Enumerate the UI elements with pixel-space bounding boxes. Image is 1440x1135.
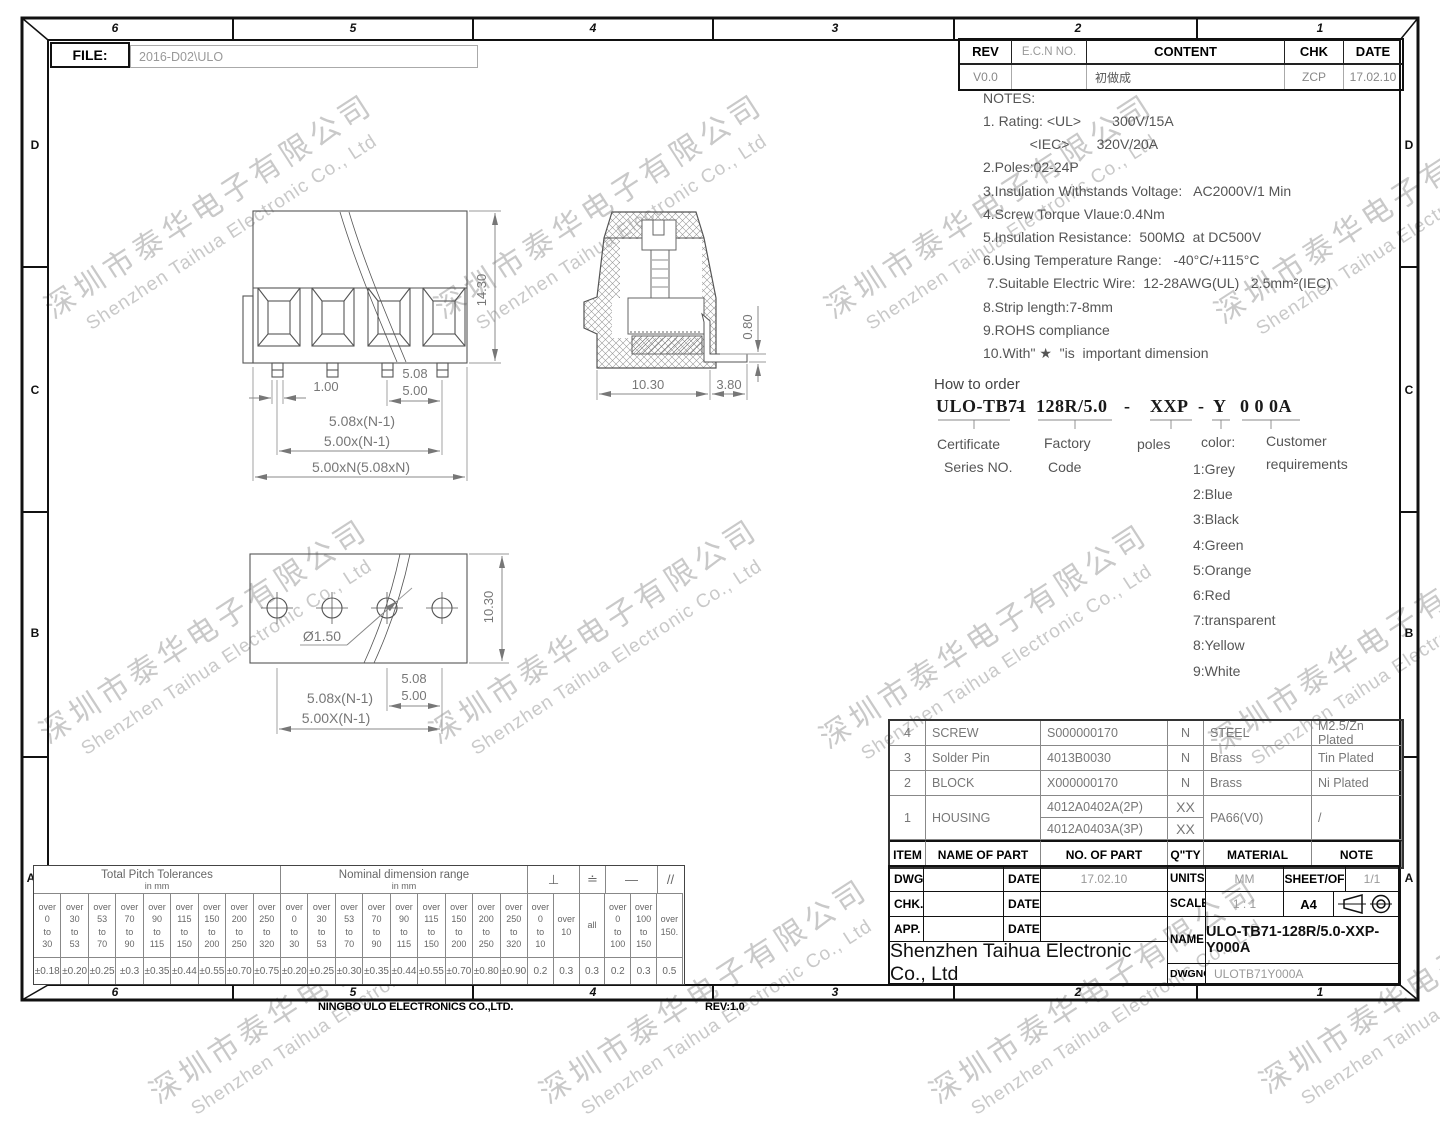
part-name: HOUSING xyxy=(926,796,1041,840)
range-cell: over150. xyxy=(657,894,683,958)
zone-bottom-5: 5 xyxy=(343,985,363,999)
range-cell: over53to70 xyxy=(336,894,363,958)
tolerance-value: ±0.55 xyxy=(199,958,226,984)
tolerance-value: ±0.20 xyxy=(61,958,88,984)
nominal-title-text: Nominal dimension range xyxy=(339,869,469,881)
zone-right-d: D xyxy=(1402,138,1416,152)
footer-rev: REV:1.0 xyxy=(705,1001,745,1013)
range-cell: over150to200 xyxy=(199,894,226,958)
app-label: APP. xyxy=(890,917,924,942)
file-label: FILE: xyxy=(50,42,130,68)
zone-top-5: 5 xyxy=(343,21,363,35)
note-line: 4.Screw Torque Vlaue:0.4Nm xyxy=(983,203,1331,226)
order-label-poles: poles xyxy=(1137,436,1170,452)
tolerance-value: ±0.70 xyxy=(446,958,473,984)
tolerance-value: ±0.30 xyxy=(336,958,363,984)
projection-symbol xyxy=(1334,892,1398,917)
color-option: 4:Green xyxy=(1193,533,1276,558)
note-line: <IEC> 320V/20A xyxy=(983,133,1331,156)
note-line: 7.Suitable Electric Wire: 12-28AWG(UL) 2… xyxy=(983,272,1331,295)
tolerance-value: ±0.75 xyxy=(254,958,281,984)
chk-date-value xyxy=(1041,892,1168,917)
tolerance-value: ±0.35 xyxy=(363,958,390,984)
units-value: MM xyxy=(1206,867,1284,892)
third-angle-projection-icon xyxy=(1338,893,1394,915)
content-header: CONTENT xyxy=(1087,40,1285,65)
dwgno-label: DWGNO. xyxy=(1168,964,1206,983)
pitch-range-headers: over0to30over30to53over53to70over70to90o… xyxy=(34,894,281,958)
part-item: 4 xyxy=(890,721,926,746)
order-label-factory: Factory xyxy=(1044,435,1091,451)
geo-range-headers: over0to10over10allover0to100over100to150… xyxy=(528,894,683,958)
note-line: 5.Insulation Resistance: 500MΩ at DC500V xyxy=(983,226,1331,249)
part-no: X000000170 xyxy=(1041,771,1168,796)
tolerance-value: 0.2 xyxy=(528,958,554,984)
note-line: 10.With" ★ "is important dimension xyxy=(983,342,1331,365)
parts-header-no: NO. OF PART xyxy=(1041,840,1168,867)
note-line: 9.ROHS compliance xyxy=(983,319,1331,342)
part-qty: XX xyxy=(1168,796,1204,818)
zone-left-c: C xyxy=(28,383,42,397)
nominal-range-title: Nominal dimension range in mm xyxy=(281,866,528,894)
zone-right-c: C xyxy=(1402,383,1416,397)
units-label: UNITS xyxy=(1168,867,1206,892)
color-options-list: 1:Grey2:Blue3:Black4:Green5:Orange6:Red7… xyxy=(1193,457,1276,684)
zone-left-d: D xyxy=(28,138,42,152)
tolerance-value: ±0.18 xyxy=(34,958,61,984)
name-label: NAME xyxy=(1168,917,1206,964)
order-label-series: Series NO. xyxy=(944,459,1012,475)
part-name: BLOCK xyxy=(926,771,1041,796)
parts-header-qty: Q"TY xyxy=(1168,840,1204,867)
notes-block: NOTES: 1. Rating: <UL> 300V/15A <IEC> 32… xyxy=(983,90,1331,365)
part-note: Ni Plated xyxy=(1312,771,1402,796)
range-cell: over115to150 xyxy=(418,894,445,958)
part-qty: XX xyxy=(1168,818,1204,840)
zone-top-3: 3 xyxy=(825,21,845,35)
order-code-color: Y xyxy=(1213,396,1227,417)
order-code-dash: - xyxy=(1124,396,1131,417)
zone-bottom-3: 3 xyxy=(825,985,845,999)
part-no: 4012A0403A(3P) xyxy=(1041,818,1168,840)
part-note: Tin Plated xyxy=(1312,746,1402,771)
range-cell: over0to30 xyxy=(34,894,61,958)
order-label-requirements: requirements xyxy=(1266,456,1348,472)
tolerance-value: 0.3 xyxy=(631,958,657,984)
rev-header: REV xyxy=(960,40,1012,65)
range-cell: all xyxy=(580,894,606,958)
order-code-dash: - xyxy=(1198,396,1205,417)
dwg-date-value: 17.02.10 xyxy=(1041,867,1168,892)
perpendicularity-symbol: ⊥ xyxy=(528,866,580,894)
nominal-range-headers: over0to30over30to53over53to70over70to90o… xyxy=(281,894,528,958)
notes-lines: 1. Rating: <UL> 300V/15A <IEC> 320V/20A2… xyxy=(983,110,1331,365)
order-label-color: color: xyxy=(1201,434,1235,450)
range-cell: over0to10 xyxy=(528,894,554,958)
color-option: 9:White xyxy=(1193,659,1276,684)
order-code-poles: XXP xyxy=(1150,396,1189,417)
tolerance-value: ±0.35 xyxy=(144,958,171,984)
color-option: 6:Red xyxy=(1193,583,1276,608)
part-item: 2 xyxy=(890,771,926,796)
zone-bottom-6: 6 xyxy=(105,985,125,999)
scale-value: 1 : 1 xyxy=(1206,892,1284,917)
part-material: Brass xyxy=(1204,771,1312,796)
file-path: 2016-D02\ULO xyxy=(130,45,478,68)
dwgno-value: ULOTB71Y000A xyxy=(1206,964,1398,983)
app-date-label: DATE xyxy=(1004,917,1041,942)
pitch-unit-text: in mm xyxy=(145,881,170,891)
part-no: S000000170 xyxy=(1041,721,1168,746)
tolerance-value: ±0.90 xyxy=(501,958,528,984)
range-cell: over90to115 xyxy=(144,894,171,958)
rev-value: V0.0 xyxy=(960,65,1012,89)
part-note: / xyxy=(1312,796,1402,840)
part-material: STEEL xyxy=(1204,721,1312,746)
part-item: 1 xyxy=(890,796,926,840)
parts-header-item: ITEM xyxy=(890,840,926,867)
content-value: 初做成 xyxy=(1087,65,1285,89)
pitch-tolerance-title: Total Pitch Tolerances in mm xyxy=(34,866,281,894)
parts-header-material: MATERIAL xyxy=(1204,840,1312,867)
order-label-code: Code xyxy=(1048,459,1081,475)
dwg-label: DWG. xyxy=(890,867,924,892)
range-cell: over200to250 xyxy=(226,894,253,958)
color-option: 1:Grey xyxy=(1193,457,1276,482)
tolerance-value: ±0.55 xyxy=(418,958,445,984)
ecn-header: E.C.N NO. xyxy=(1012,40,1087,65)
chk-signature xyxy=(924,892,1004,917)
range-cell: over200to250 xyxy=(473,894,500,958)
pitch-values: ±0.18±0.20±0.25±0.3±0.35±0.44±0.55±0.70±… xyxy=(34,958,281,984)
range-cell: over70to90 xyxy=(116,894,143,958)
app-signature xyxy=(924,917,1004,942)
tolerance-value: 0.3 xyxy=(554,958,580,984)
tolerance-value: ±0.70 xyxy=(226,958,253,984)
range-cell: over90to115 xyxy=(391,894,418,958)
color-option: 8:Yellow xyxy=(1193,633,1276,658)
zone-left-b: B xyxy=(28,626,42,640)
tolerance-value: ±0.25 xyxy=(89,958,116,984)
order-code-factory: 128R/5.0 xyxy=(1036,396,1108,417)
part-no: 4012A0402A(2P) xyxy=(1041,796,1168,818)
app-date-value xyxy=(1041,917,1168,942)
paper-size: A4 xyxy=(1284,892,1334,917)
tolerance-value: ±0.44 xyxy=(171,958,198,984)
chk-header: CHK xyxy=(1285,40,1344,65)
range-cell: over250to320 xyxy=(501,894,528,958)
part-note: M2.5/Zn Plated xyxy=(1312,721,1402,746)
range-cell: over150to200 xyxy=(446,894,473,958)
parts-table: 4 SCREW S000000170 N STEEL M2.5/Zn Plate… xyxy=(888,719,1404,869)
sheet-label: SHEET/OF xyxy=(1284,867,1346,892)
tolerance-value: ±0.44 xyxy=(391,958,418,984)
range-cell: over250to320 xyxy=(254,894,281,958)
part-qty: N xyxy=(1168,721,1204,746)
zone-bottom-1: 1 xyxy=(1310,985,1330,999)
part-material: PA66(V0) xyxy=(1204,796,1312,840)
title-block: DWG. DATE 17.02.10 CHK. DATE APP. DATE S… xyxy=(888,865,1400,985)
tolerance-value: 0.3 xyxy=(580,958,606,984)
range-cell: over100to150 xyxy=(631,894,657,958)
zone-top-6: 6 xyxy=(105,21,125,35)
parts-header-note: NOTE xyxy=(1312,840,1402,867)
part-material: Brass xyxy=(1204,746,1312,771)
sheet-value: 1/1 xyxy=(1346,867,1398,892)
tolerance-value: 0.5 xyxy=(657,958,683,984)
dwg-signature xyxy=(924,867,1004,892)
scale-label: SCALE xyxy=(1168,892,1206,917)
note-line: 3.Insulation Withstands Voltage: AC2000V… xyxy=(983,180,1331,203)
nominal-values: ±0.20±0.25±0.30±0.35±0.44±0.55±0.70±0.80… xyxy=(281,958,528,984)
range-cell: over53to70 xyxy=(89,894,116,958)
tolerance-value: ±0.25 xyxy=(308,958,335,984)
drawing-sheet: 深圳市泰华电子有限公司Shenzhen Taihua Electronic Co… xyxy=(0,0,1440,1018)
chk-date-label: DATE xyxy=(1004,892,1041,917)
order-code-custom: 0 0 0A xyxy=(1240,396,1292,417)
note-line: 1. Rating: <UL> 300V/15A xyxy=(983,110,1331,133)
zone-top-1: 1 xyxy=(1310,21,1330,35)
color-option: 2:Blue xyxy=(1193,482,1276,507)
part-qty: N xyxy=(1168,771,1204,796)
straightness-symbol: — xyxy=(606,866,658,894)
order-code-dash: - xyxy=(1016,396,1023,417)
zone-right-b: B xyxy=(1402,626,1416,640)
nominal-unit-text: in mm xyxy=(392,881,417,891)
range-cell: over0to30 xyxy=(281,894,308,958)
range-cell: over30to53 xyxy=(308,894,335,958)
date-value: 17.02.10 xyxy=(1344,65,1402,89)
geo-values: 0.20.30.30.20.30.5 xyxy=(528,958,683,984)
zone-bottom-4: 4 xyxy=(583,985,603,999)
order-code-series: ULO-TB71 xyxy=(936,396,1027,417)
chk-label: CHK. xyxy=(890,892,924,917)
zone-bottom-2: 2 xyxy=(1068,985,1088,999)
order-title: How to order xyxy=(934,376,1020,393)
date-header: DATE xyxy=(1344,40,1402,65)
range-cell: over70to90 xyxy=(363,894,390,958)
footer-company: NINGBO ULO ELECTRONICS CO.,LTD. xyxy=(318,1001,513,1013)
range-cell: over115to150 xyxy=(171,894,198,958)
note-line: 8.Strip length:7-8mm xyxy=(983,296,1331,319)
range-cell: over10 xyxy=(554,894,580,958)
color-option: 3:Black xyxy=(1193,507,1276,532)
tolerance-value: ±0.80 xyxy=(473,958,500,984)
part-qty: N xyxy=(1168,746,1204,771)
tolerance-value: ±0.3 xyxy=(116,958,143,984)
tolerance-value: ±0.20 xyxy=(281,958,308,984)
revision-table: REV E.C.N NO. CONTENT CHK DATE V0.0 初做成 … xyxy=(958,38,1404,91)
parts-header-name: NAME OF PART xyxy=(926,840,1041,867)
parallelism-symbol: // xyxy=(658,866,683,894)
tolerance-table: Total Pitch Tolerances in mm Nominal dim… xyxy=(33,865,685,985)
part-name: SCREW xyxy=(926,721,1041,746)
order-label-certificate: Certificate xyxy=(937,436,1000,452)
note-line: 2.Poles:02-24P xyxy=(983,156,1331,179)
zone-right-a: A xyxy=(1402,871,1416,885)
dwg-date-label: DATE xyxy=(1004,867,1041,892)
notes-title: NOTES: xyxy=(983,90,1331,106)
range-cell: over30to53 xyxy=(61,894,88,958)
zone-top-4: 4 xyxy=(583,21,603,35)
color-option: 7:transparent xyxy=(1193,608,1276,633)
range-cell: over0to100 xyxy=(605,894,631,958)
chk-value: ZCP xyxy=(1285,65,1344,89)
pitch-title-text: Total Pitch Tolerances xyxy=(101,869,213,881)
tolerance-value: 0.2 xyxy=(605,958,631,984)
coplanarity-symbol: ≐ xyxy=(580,866,606,894)
order-label-customer: Customer xyxy=(1266,433,1327,449)
note-line: 6.Using Temperature Range: -40°C/+115°C xyxy=(983,249,1331,272)
color-option: 5:Orange xyxy=(1193,558,1276,583)
name-value: ULO-TB71-128R/5.0-XXP-Y000A xyxy=(1206,917,1398,964)
part-name: Solder Pin xyxy=(926,746,1041,771)
zone-top-2: 2 xyxy=(1068,21,1088,35)
part-no: 4013B0030 xyxy=(1041,746,1168,771)
company-name: Shenzhen Taihua Electronic Co., Ltd xyxy=(890,942,1168,983)
part-item: 3 xyxy=(890,746,926,771)
ecn-value xyxy=(1012,65,1087,89)
